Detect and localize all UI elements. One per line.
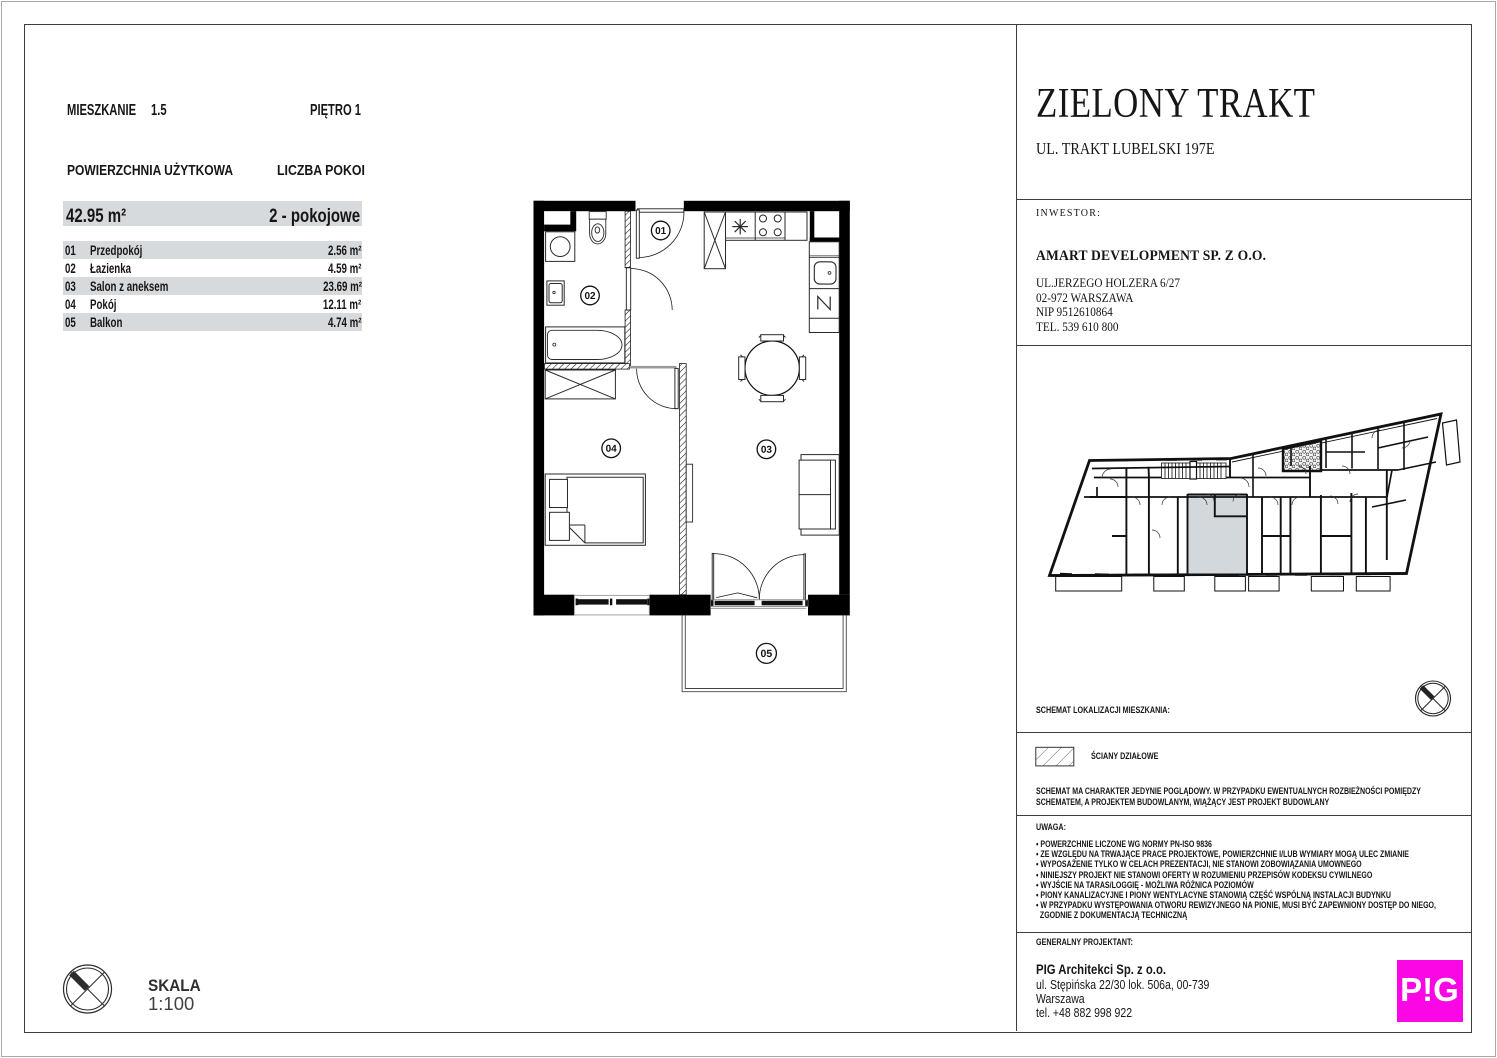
svg-text:05: 05 bbox=[761, 648, 773, 660]
svg-text:02: 02 bbox=[584, 291, 596, 302]
svg-text:01: 01 bbox=[655, 226, 667, 237]
svg-text:04: 04 bbox=[606, 444, 618, 455]
svg-text:03: 03 bbox=[761, 445, 773, 456]
